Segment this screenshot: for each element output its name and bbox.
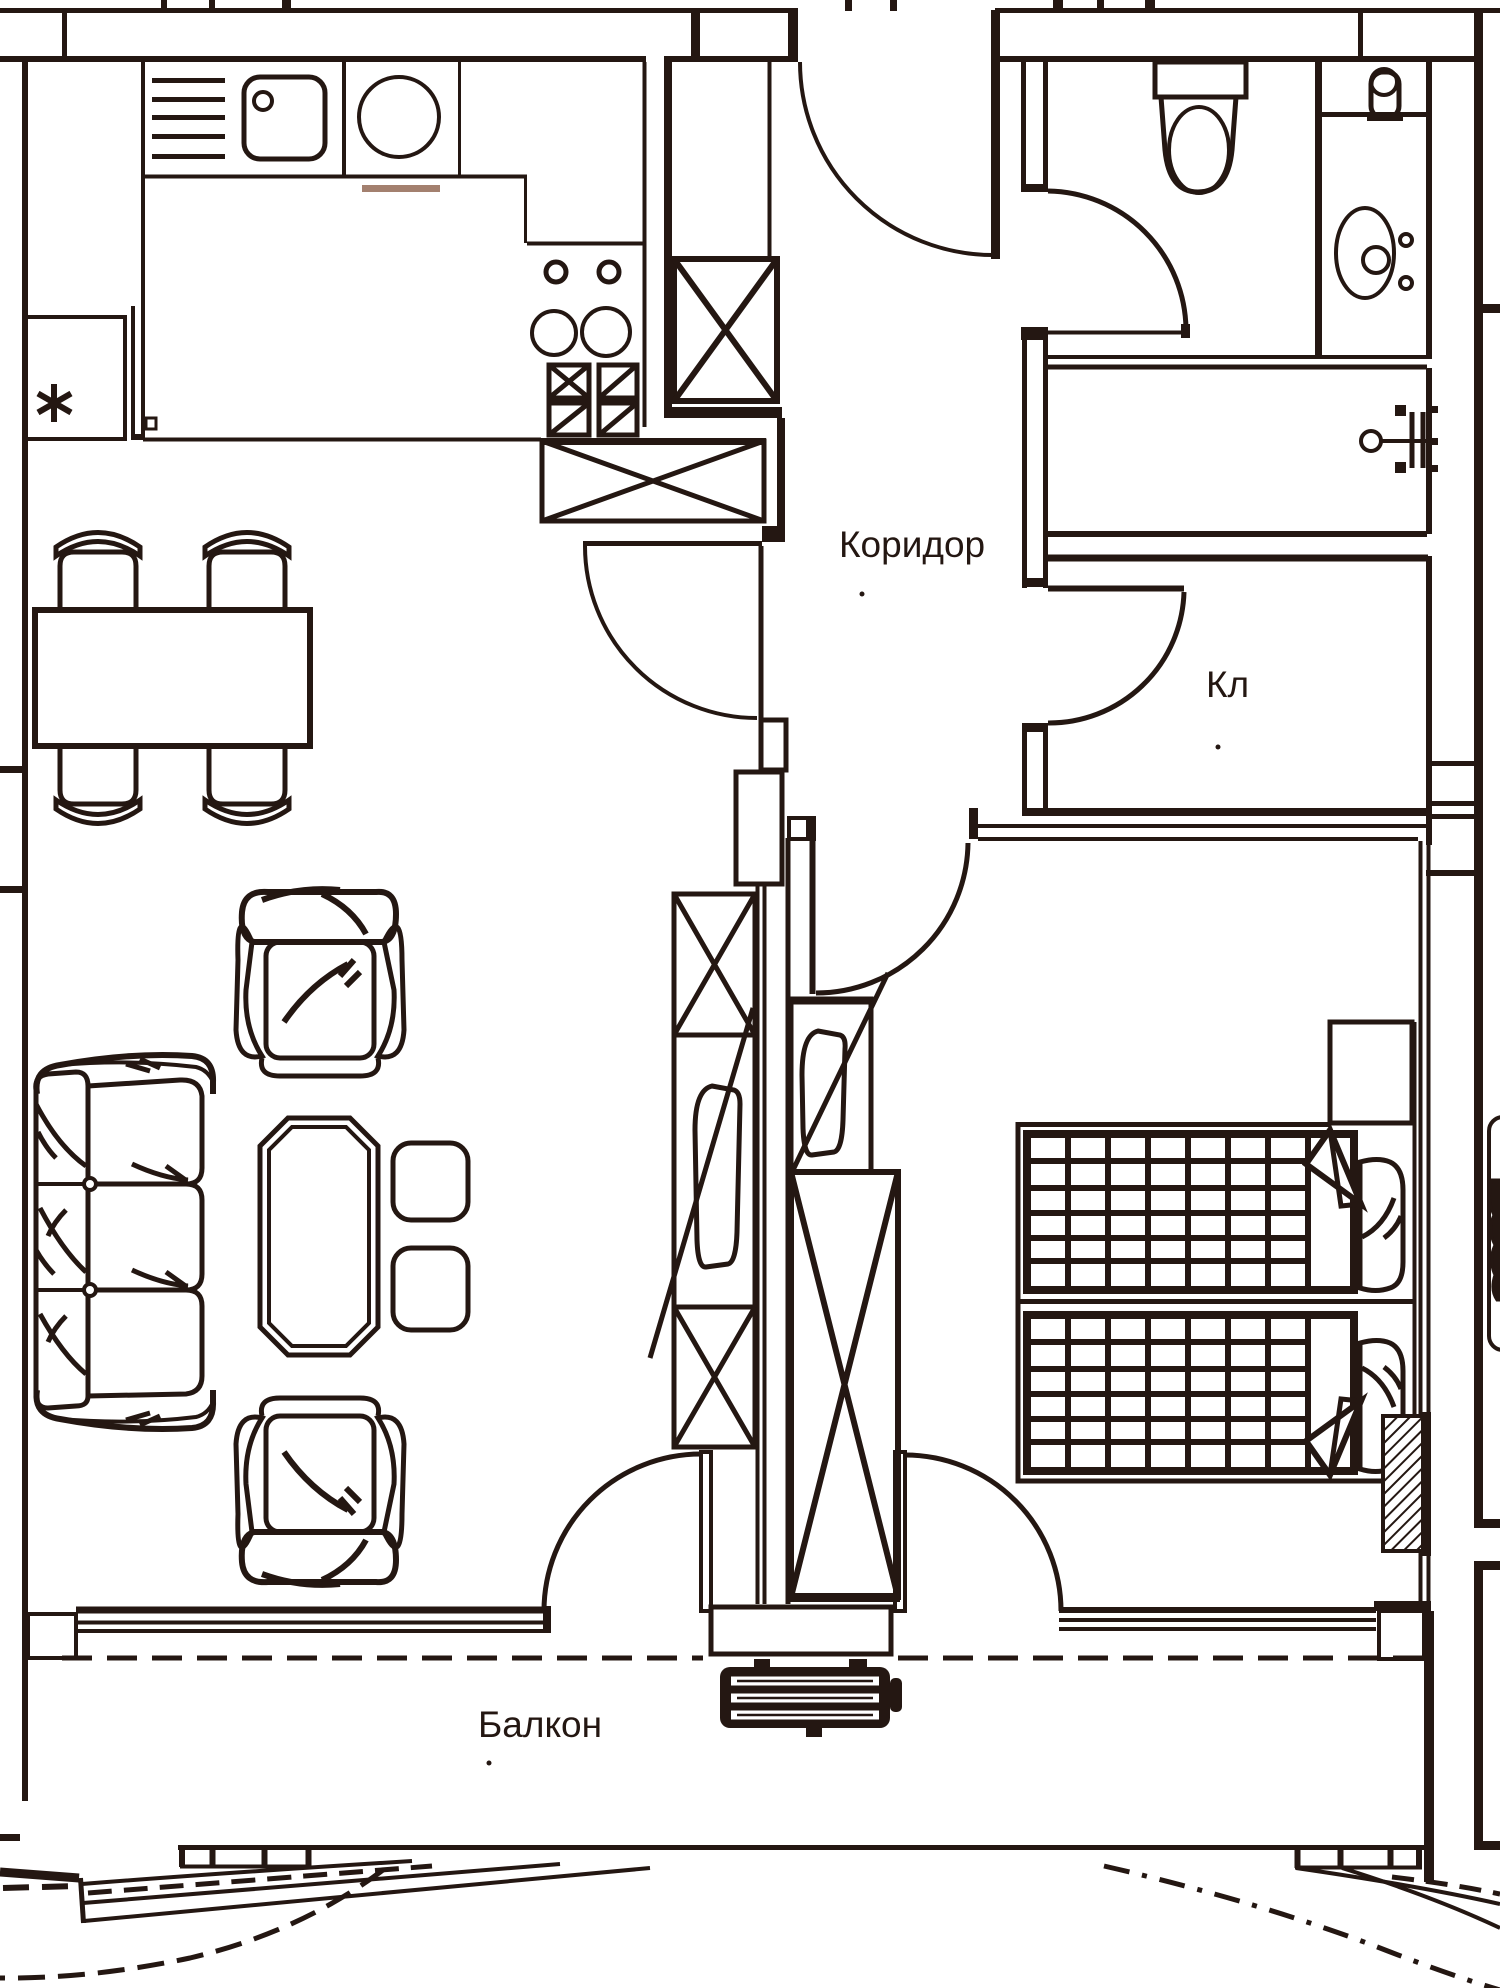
svg-text:Коридор: Коридор bbox=[839, 524, 985, 565]
svg-text:Балкон: Балкон bbox=[478, 1704, 602, 1745]
svg-text:Кл: Кл bbox=[1206, 664, 1249, 705]
